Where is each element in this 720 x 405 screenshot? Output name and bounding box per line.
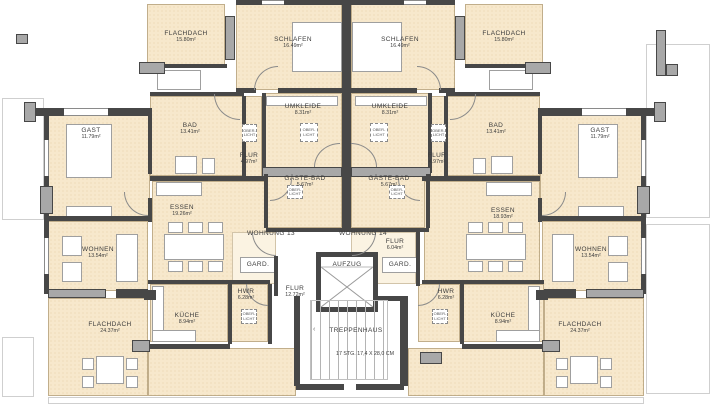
- kitchen-counter: [152, 330, 196, 342]
- chair: [556, 376, 568, 388]
- armchair: [62, 262, 82, 282]
- armchair: [62, 236, 82, 256]
- wall-segment: [266, 228, 343, 232]
- bed: [578, 124, 618, 178]
- skylight-text: LICHT: [432, 133, 445, 137]
- exterior-wall-chunk: [139, 62, 165, 74]
- wall-segment: [342, 0, 351, 232]
- skylight-oberlicht: OBER-LICHT: [370, 123, 388, 142]
- wall-segment: [422, 176, 540, 181]
- terrace-table: [570, 356, 598, 384]
- exterior-wall-chunk: [525, 62, 551, 74]
- gard-closet-left: [240, 257, 276, 273]
- chair: [188, 261, 203, 272]
- wall-segment: [400, 296, 408, 386]
- chair: [82, 358, 94, 370]
- shelf-unit: [116, 234, 138, 282]
- sideboard: [156, 182, 202, 196]
- wall-segment: [296, 384, 344, 390]
- wall-segment: [422, 280, 544, 284]
- bed: [352, 22, 402, 72]
- room-flachdach-top-right: [465, 4, 543, 65]
- wall-segment: [274, 256, 278, 296]
- dining-table: [164, 234, 224, 260]
- window-opening: [262, 0, 284, 5]
- shelf-unit: [552, 234, 574, 282]
- skylight-text: LICHT: [288, 192, 302, 196]
- skylight-text: LICHT: [371, 133, 387, 137]
- kitchen-counter: [496, 330, 540, 342]
- chair: [168, 222, 183, 233]
- exterior-wall-chunk: [225, 16, 235, 60]
- window-opening: [641, 140, 646, 176]
- skylight-oberlicht: OBER-LICHT: [242, 124, 257, 142]
- chair: [188, 222, 203, 233]
- window-opening: [44, 140, 49, 176]
- exterior-wall-chunk: [40, 186, 53, 214]
- wall-segment: [148, 344, 230, 349]
- stair-direction-arrow: ‹: [313, 326, 315, 333]
- exterior-wall-chunk: [455, 16, 465, 60]
- skylight-oberlicht: OBER-LICHT: [241, 309, 257, 324]
- exterior-wall-chunk: [666, 64, 678, 76]
- floor-plan: ‹ OBER-LICHT OBER-LICHT OBER-LICHT OBER-…: [0, 0, 720, 405]
- terrace-band-left: [148, 348, 296, 396]
- wall-segment: [538, 112, 542, 174]
- sideboard: [486, 182, 532, 196]
- exterior-wall-chunk: [656, 30, 666, 76]
- room-flachdach-top-left: [147, 4, 225, 65]
- chair: [488, 222, 503, 233]
- bath-fixture: [491, 156, 513, 174]
- wall-segment: [460, 284, 464, 344]
- wall-segment: [48, 216, 148, 221]
- wardrobe: [266, 96, 338, 106]
- wall-segment: [268, 284, 272, 344]
- wall-segment: [416, 228, 420, 286]
- skylight-oberlicht: OBER-LICHT: [300, 123, 318, 142]
- chair: [82, 376, 94, 388]
- wardrobe: [355, 96, 427, 106]
- wall-segment: [148, 198, 152, 222]
- wall-segment: [294, 296, 300, 386]
- terrace-table: [96, 356, 124, 384]
- wall-segment: [264, 174, 268, 228]
- outline-overhang: [2, 337, 34, 397]
- chair: [508, 261, 523, 272]
- wall-segment: [228, 284, 232, 344]
- skylight-oberlicht: OBER-LICHT: [432, 309, 448, 324]
- window-opening: [44, 238, 49, 274]
- exterior-wall-chunk: [654, 102, 666, 122]
- wall-segment: [536, 290, 548, 300]
- wall-segment: [356, 384, 404, 390]
- bath-fixture: [175, 156, 197, 174]
- outline-overhang: [2, 98, 44, 220]
- wall-segment: [150, 176, 268, 181]
- skylight-oberlicht: OBER-LICHT: [287, 185, 303, 199]
- chair: [600, 358, 612, 370]
- armchair: [608, 262, 628, 282]
- bath-fixture: [473, 158, 486, 174]
- wall-segment: [144, 290, 156, 300]
- exterior-wall-chunk: [542, 340, 560, 352]
- skylight-oberlicht: OBER-LICHT: [389, 185, 405, 199]
- wall-band: [262, 167, 342, 177]
- wall-segment: [542, 216, 642, 221]
- window-opening: [582, 108, 626, 116]
- wall-band: [586, 289, 644, 298]
- exterior-wall-chunk: [24, 102, 36, 122]
- wall-band: [351, 167, 431, 177]
- skylight-oberlicht: OBER-LICHT: [431, 124, 446, 142]
- dining-table: [466, 234, 526, 260]
- wall-segment: [426, 174, 430, 228]
- exterior-wall-chunk: [132, 340, 150, 352]
- wall-band: [48, 289, 106, 298]
- chair: [168, 261, 183, 272]
- chair: [126, 376, 138, 388]
- armchair: [608, 236, 628, 256]
- wall-segment: [544, 289, 576, 298]
- bed: [66, 124, 112, 178]
- chair: [126, 358, 138, 370]
- outline-overhang: [48, 397, 644, 404]
- chair: [468, 261, 483, 272]
- window-opening: [404, 0, 426, 5]
- stair-treads: [310, 300, 388, 380]
- chair: [556, 358, 568, 370]
- wall-segment: [351, 0, 455, 5]
- chair: [488, 261, 503, 272]
- wall-segment: [462, 344, 544, 349]
- skylight-text: LICHT: [242, 317, 256, 321]
- chair: [208, 261, 223, 272]
- window-opening: [641, 238, 646, 274]
- chair: [468, 222, 483, 233]
- exterior-wall-chunk: [16, 34, 28, 44]
- chair: [208, 222, 223, 233]
- skylight-text: LICHT: [301, 133, 317, 137]
- wall-segment: [262, 93, 266, 173]
- wall-segment: [148, 112, 152, 174]
- wall-segment: [351, 88, 417, 93]
- skylight-text: LICHT: [433, 317, 447, 321]
- chair: [508, 222, 523, 233]
- wall-segment: [236, 0, 343, 5]
- skylight-text: LICHT: [390, 192, 404, 196]
- exterior-wall-chunk: [420, 352, 442, 364]
- gard-closet-right: [382, 257, 418, 273]
- outline-overhang: [646, 224, 710, 394]
- skylight-text: LICHT: [243, 133, 256, 137]
- window-opening: [64, 108, 108, 116]
- chair: [600, 376, 612, 388]
- exterior-wall-chunk: [637, 186, 650, 214]
- wall-segment: [278, 88, 343, 93]
- bath-fixture: [202, 158, 215, 174]
- bed: [292, 22, 342, 72]
